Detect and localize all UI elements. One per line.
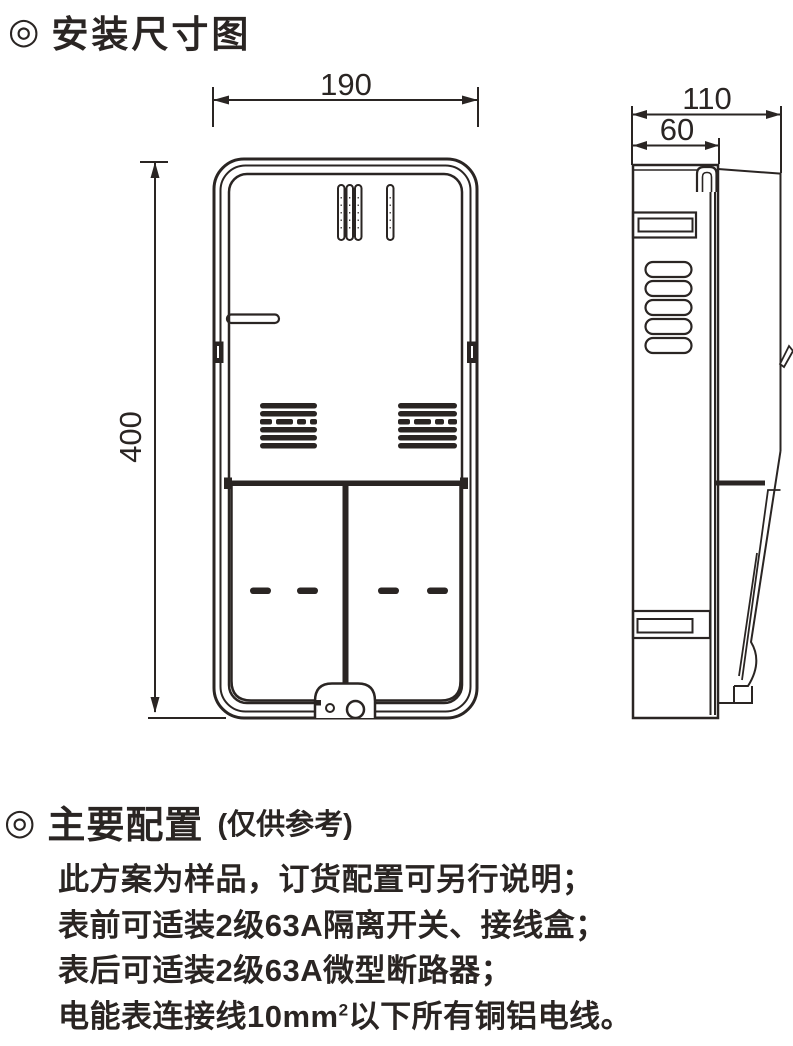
front-width-label: 190 [320,67,372,102]
config-heading-note: (仅供参考) [217,801,352,843]
front-height-label: 400 [113,411,148,463]
side-overall-depth-label: 110 [682,81,731,116]
side-vent-slots [646,262,692,353]
side-body-depth-dimension: 60 [633,112,719,164]
wire-line-superscript: 2 [339,1000,349,1019]
side-upper-window [633,213,696,238]
config-text-block: 此方案为样品，订货配置可另行说明； 表前可适装2级63A隔离开关、接线盒； 表后… [58,857,788,1039]
front-side-latches [213,342,478,364]
config-line: 表前可适装2级63A隔离开关、接线盒； [58,903,788,949]
side-overall-depth-dimension: 110 [632,81,781,173]
front-seal-tab [315,684,375,719]
wire-line-suffix: 以下所有铜铝电线。 [349,999,633,1034]
side-open-door [718,169,793,703]
config-line: 表后可适装2级63A微型断路器； [58,948,788,994]
front-view-drawing: 190 400 [113,67,478,718]
side-lower-window [633,611,710,638]
front-door-dashes [250,588,448,595]
side-view-drawing: 110 60 [632,81,793,718]
config-heading: ◎ 主要配置 (仅供参考) [4,794,353,849]
config-line-wire: 电能表连接线10mm2以下所有铜铝电线。 [58,994,788,1040]
front-width-dimension: 190 [213,67,478,127]
side-body-depth-label: 60 [660,112,694,147]
dimension-drawing-canvas: 190 400 [0,0,793,780]
front-left-slot [227,315,279,324]
datasheet-page: ◎ 安装尺寸图 190 [0,0,793,1046]
wire-line-prefix: 电能表连接线10mm [58,999,339,1034]
side-top-hook [697,167,717,192]
side-door-latch [780,346,793,367]
front-louver-vents [260,403,457,449]
front-height-dimension: 400 [113,162,226,718]
front-top-vent-slots [338,185,394,240]
front-divider [224,478,468,686]
section-bullet-icon: ◎ [4,804,35,840]
config-line: 此方案为样品，订货配置可另行说明； [58,857,788,903]
config-heading-text: 主要配置 [47,794,203,849]
